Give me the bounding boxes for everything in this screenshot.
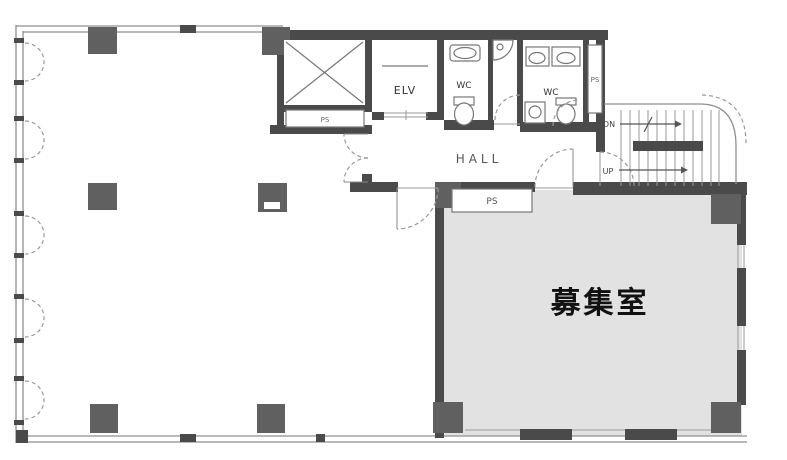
mop-sink-icon — [525, 102, 545, 123]
elv-door-stub — [426, 112, 444, 120]
shaft-service-box-label: PS — [321, 116, 330, 124]
wc-left-label: WC — [456, 81, 471, 91]
column — [88, 183, 117, 210]
column — [257, 404, 285, 433]
stair-curved-wall — [700, 104, 736, 146]
stair-landing-bar — [633, 141, 703, 151]
elv-door-stub — [372, 112, 384, 120]
wc1-vestibule-wall — [488, 39, 493, 120]
wc-vestibule — [493, 40, 520, 124]
elevator-room: ELV — [382, 66, 428, 120]
window-swing-arc — [25, 121, 44, 159]
staircase: DN UP — [603, 95, 746, 186]
stairs-up-label: UP — [603, 167, 614, 176]
recruit-right-wall-seg — [737, 350, 746, 405]
window-swing-arc — [25, 43, 44, 81]
double-door-swing-arc — [344, 134, 368, 158]
recruit-bottom-wall-seg — [625, 429, 677, 440]
toilet-bowl-icon — [455, 103, 474, 125]
elevator-label: ELV — [394, 84, 416, 97]
door-swing-arc — [495, 95, 520, 120]
recruit-room-label: 募集室 — [550, 286, 650, 321]
door-swing-arc — [535, 149, 573, 187]
hall-label: HALL — [456, 152, 503, 166]
stairs-down-label: DN — [603, 120, 615, 129]
column — [711, 402, 741, 433]
shaft-right-wall — [365, 39, 372, 112]
stairs-down-arrowhead — [675, 121, 682, 128]
recruit-left-wall — [435, 182, 444, 438]
window-swing-arc — [25, 216, 44, 254]
window-swing-arcs — [25, 43, 44, 419]
vestibule-wc2-wall — [517, 39, 523, 126]
window-swing-arc — [25, 299, 44, 337]
core-top-wall — [283, 30, 608, 40]
column — [90, 404, 118, 433]
recruit-bottom-wall-seg — [520, 429, 572, 440]
column — [711, 194, 741, 224]
hall-bottom-wall — [350, 182, 398, 192]
toilet-bowl-icon — [557, 104, 575, 124]
pipe-space-strip: PS — [588, 45, 602, 113]
wc-right-label: WC — [543, 88, 558, 98]
wc-right-room: WC — [525, 47, 580, 126]
column — [88, 27, 117, 54]
pipe-space-label: PS — [591, 76, 600, 84]
window-swing-arc — [25, 381, 44, 419]
ps-box-label: PS — [486, 197, 497, 207]
floor-plan-drawing: PS ELV WC WC PS — [0, 0, 787, 460]
floor-plan: PS ELV WC WC PS — [0, 0, 787, 460]
elevator-shaft: PS — [284, 40, 365, 127]
corner-sink-icon — [493, 40, 513, 60]
wc-left-room: WC — [450, 45, 480, 125]
recruit-top-wall-right — [573, 182, 747, 195]
column — [433, 402, 463, 433]
stair-curved-outer-dash — [702, 95, 746, 146]
recruit-right-wall-seg — [737, 268, 746, 326]
door-swing-arc — [397, 188, 438, 229]
elv-right-wall — [437, 39, 444, 120]
column-chip — [264, 202, 280, 209]
